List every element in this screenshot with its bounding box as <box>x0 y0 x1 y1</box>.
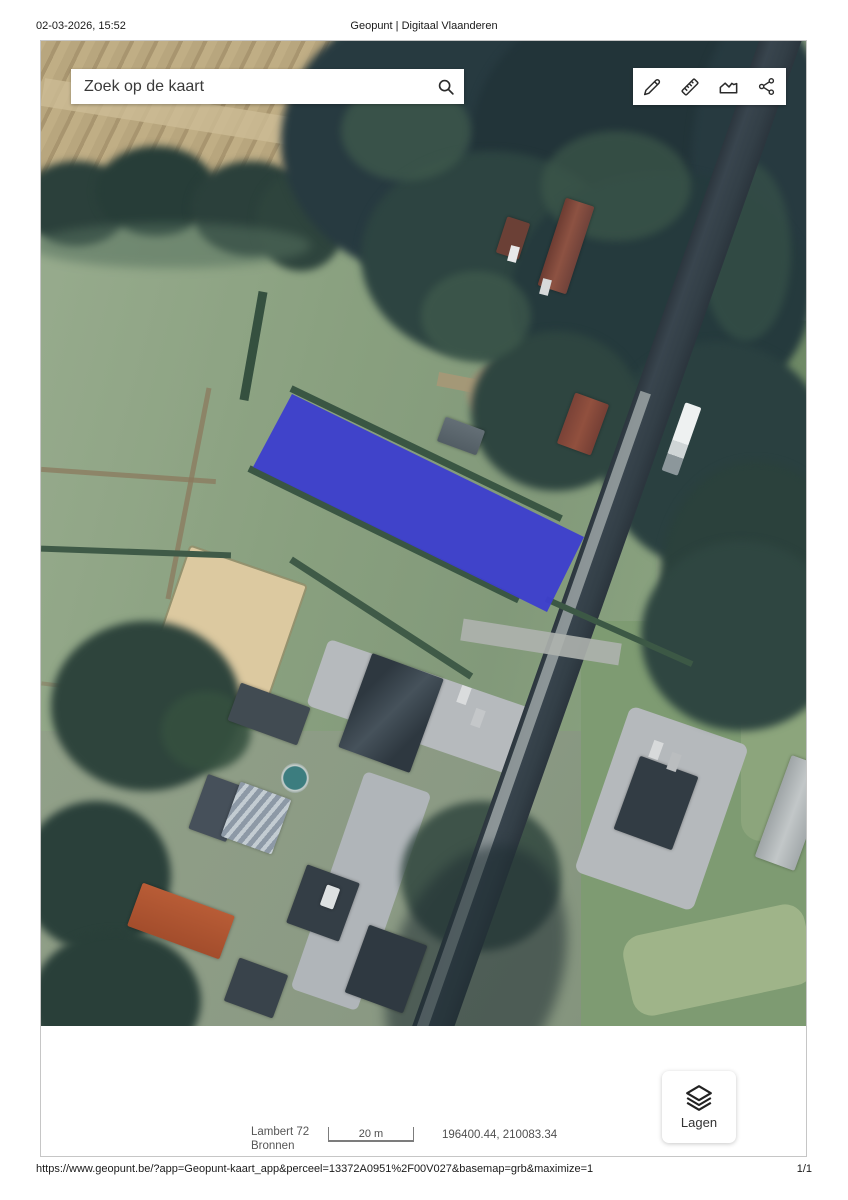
search-button[interactable] <box>428 69 464 104</box>
map-footer: Lambert 72 Bronnen 20 m 196400.44, 21008… <box>41 1026 806 1156</box>
draw-tool-button[interactable] <box>635 69 669 105</box>
map-canvas[interactable] <box>41 41 806 1026</box>
ruler-icon <box>679 76 701 98</box>
layers-button[interactable]: Lagen <box>662 1071 736 1143</box>
terrain-profile-icon <box>717 75 740 98</box>
print-page: 02-03-2026, 15:52 Geopunt | Digitaal Vla… <box>0 0 848 1200</box>
pencil-icon <box>641 76 663 98</box>
map-widget: Lambert 72 Bronnen 20 m 196400.44, 21008… <box>40 40 807 1157</box>
print-footer: https://www.geopunt.be/?app=Geopunt-kaar… <box>36 1163 812 1175</box>
parcel-overlay <box>41 41 806 1026</box>
sources-link[interactable]: Bronnen <box>251 1139 309 1153</box>
map-toolbar <box>633 68 786 105</box>
scale-label: 20 m <box>359 1128 383 1140</box>
page-number: 1/1 <box>797 1163 812 1175</box>
search-bar <box>71 69 464 104</box>
share-button[interactable] <box>750 69 784 105</box>
measure-tool-button[interactable] <box>673 69 707 105</box>
parcel-highlight[interactable] <box>253 394 584 612</box>
print-title: Geopunt | Digitaal Vlaanderen <box>350 20 497 32</box>
scale-bar: 20 m <box>328 1127 414 1142</box>
layers-button-label: Lagen <box>681 1115 717 1130</box>
search-input[interactable] <box>71 69 428 104</box>
share-icon <box>756 76 777 97</box>
mouse-coordinates: 196400.44, 210083.34 <box>442 1129 557 1141</box>
print-datetime: 02-03-2026, 15:52 <box>36 20 126 32</box>
print-header: 02-03-2026, 15:52 Geopunt | Digitaal Vla… <box>36 20 812 36</box>
projection-link[interactable]: Lambert 72 <box>251 1125 309 1139</box>
print-url: https://www.geopunt.be/?app=Geopunt-kaar… <box>36 1163 593 1175</box>
elevation-profile-button[interactable] <box>712 69 746 105</box>
attribution: Lambert 72 Bronnen <box>251 1125 309 1153</box>
search-icon <box>435 76 457 98</box>
layers-icon <box>683 1084 715 1112</box>
